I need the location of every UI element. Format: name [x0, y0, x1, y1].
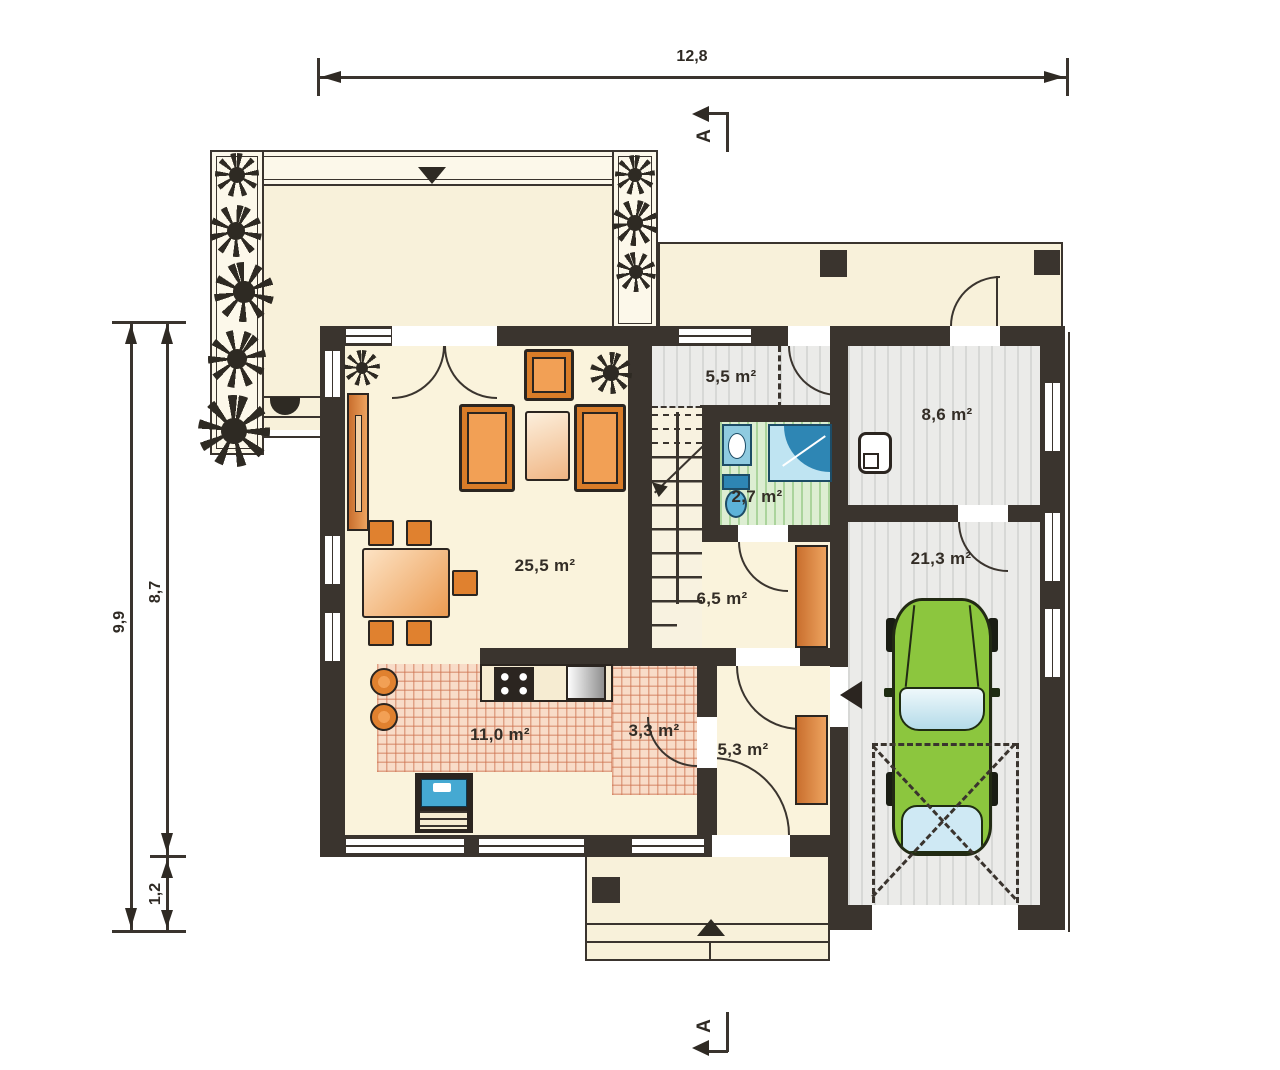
dimension-arrow-icon	[161, 910, 173, 928]
dining-chair	[368, 620, 394, 646]
room-label-vestibule: 5,3 m²	[718, 740, 769, 760]
window	[324, 535, 341, 585]
armchair	[524, 349, 574, 401]
window	[345, 328, 392, 344]
stair-treads-right	[677, 456, 702, 606]
wall-stairwell	[628, 346, 652, 648]
back-porch-floor	[658, 242, 1063, 326]
plant-icon	[615, 155, 655, 195]
dining-chair	[368, 520, 394, 546]
wardrobe	[795, 545, 828, 648]
wall-bathroom-left	[700, 405, 720, 542]
floor-plan: 25,5 m² 5,5 m² 2,7 m² 8,6 m² 21,3 m² 6,5…	[0, 0, 1280, 1070]
utility-door-opening	[950, 326, 1000, 346]
window	[1044, 512, 1061, 582]
section-marker-line	[726, 1012, 729, 1052]
window	[678, 328, 752, 344]
dining-table	[362, 548, 450, 618]
porch-column	[820, 250, 847, 277]
section-label-bottom: A	[694, 1019, 716, 1033]
washbasin-icon	[722, 424, 752, 466]
pantry-door-opening	[697, 717, 717, 768]
dimension-tick	[317, 58, 320, 96]
room-label-bathroom: 2,7 m²	[732, 487, 783, 507]
dining-chair	[406, 520, 432, 546]
garage-gate-opening	[872, 905, 1018, 930]
corridor-door-opening	[736, 648, 800, 666]
garage-gate-dashed	[872, 743, 875, 903]
room-label-living: 25,5 m²	[515, 556, 576, 576]
dimension-arrow-icon	[161, 324, 173, 344]
door-leaf	[996, 276, 998, 326]
dimension-arrow-icon	[161, 833, 173, 853]
room-label-garage: 21,3 m²	[911, 549, 972, 569]
dimension-label-height-main: 8,7	[147, 581, 165, 603]
side-entry-arrow-icon	[840, 681, 862, 709]
dimension-line-top	[318, 76, 1068, 79]
dimension-arrow-icon	[125, 324, 137, 344]
porch-column	[1034, 250, 1060, 275]
dimension-tick	[112, 321, 186, 324]
wall-utility-garage	[848, 505, 1040, 522]
room-label-utility: 8,6 m²	[922, 405, 973, 425]
dimension-tick	[1066, 58, 1069, 96]
dimension-tick	[112, 930, 186, 933]
window	[345, 838, 465, 854]
entrance-step	[585, 941, 830, 961]
room-label-kitchen: 11,0 m²	[470, 725, 530, 745]
boiler-icon	[858, 432, 892, 474]
plant-icon	[344, 350, 380, 386]
window	[324, 612, 341, 662]
entrance-porch-floor	[585, 857, 830, 923]
dimension-arrow-icon	[125, 908, 137, 928]
window	[324, 350, 341, 398]
room-utility-floor	[848, 346, 1040, 505]
plant-icon	[215, 153, 259, 197]
dining-chair	[452, 570, 478, 596]
window	[631, 838, 705, 854]
room-label-hall: 5,5 m²	[706, 367, 757, 387]
dining-chair	[406, 620, 432, 646]
porch-column	[592, 877, 620, 903]
garage-gate-dashed	[872, 743, 1018, 746]
dimension-label-width: 12,8	[676, 48, 707, 66]
bathroom-door-opening	[738, 525, 788, 542]
dimension-arrow-icon	[1044, 71, 1064, 83]
stool	[370, 668, 398, 696]
section-marker-line	[726, 112, 729, 152]
dimension-arrow-icon	[161, 860, 173, 878]
window	[1044, 382, 1061, 452]
fridge-icon	[566, 665, 606, 700]
step-divider	[709, 941, 711, 961]
garage-gate-dashed	[1016, 743, 1019, 903]
terrace-door-opening	[392, 326, 497, 346]
section-arrow-icon	[692, 1040, 709, 1056]
wall-unit	[347, 393, 369, 531]
sink-unit	[415, 773, 473, 833]
window	[478, 838, 585, 854]
armchair	[574, 404, 626, 492]
section-label-top: A	[694, 129, 716, 143]
coffee-table	[525, 411, 570, 481]
shower-icon	[768, 424, 832, 482]
dimension-label-height-total: 9,9	[111, 611, 129, 633]
garage-door-opening-internal	[958, 505, 1008, 522]
dimension-label-height-lower: 1,2	[147, 883, 165, 905]
entrance-arrow-icon	[697, 919, 725, 936]
front-door-opening	[712, 835, 790, 857]
armchair	[459, 404, 515, 492]
wardrobe	[795, 715, 828, 805]
dimension-arrow-icon	[321, 71, 341, 83]
hall-dashed-boundary	[778, 346, 781, 408]
section-arrow-icon	[692, 106, 709, 122]
back-door-opening	[788, 326, 830, 346]
room-label-pantry: 3,3 m²	[629, 721, 680, 741]
dimension-line-left-outer	[130, 322, 133, 932]
wall-left	[320, 326, 345, 857]
room-label-corridor: 6,5 m²	[697, 589, 748, 609]
stair-divider	[676, 412, 679, 604]
terrace-entry-arrow-icon	[418, 167, 446, 184]
dimension-tick	[150, 855, 186, 858]
stove-icon	[494, 667, 534, 700]
stool	[370, 703, 398, 731]
outer-contour-line	[1068, 332, 1070, 932]
window	[1044, 608, 1061, 678]
